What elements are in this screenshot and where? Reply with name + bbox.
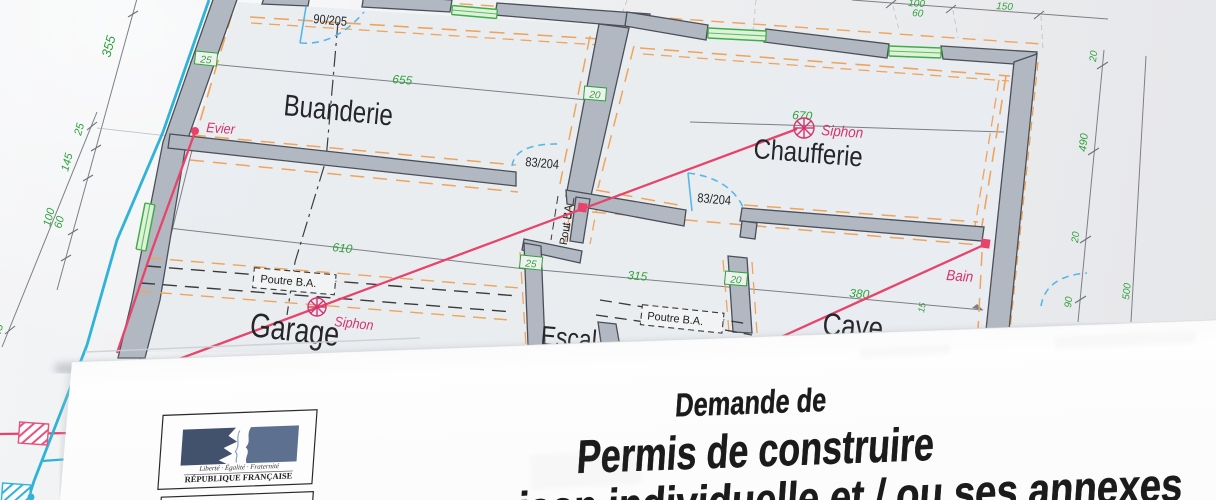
svg-text:150: 150 bbox=[996, 1, 1014, 13]
svg-text:655: 655 bbox=[392, 72, 413, 88]
svg-text:610: 610 bbox=[332, 240, 354, 256]
svg-text:90/205: 90/205 bbox=[313, 11, 348, 29]
svg-text:Siphon: Siphon bbox=[821, 122, 864, 142]
svg-text:500: 500 bbox=[1121, 282, 1134, 300]
svg-text:20: 20 bbox=[1088, 50, 1100, 64]
svg-text:315: 315 bbox=[627, 268, 648, 284]
svg-text:Bain: Bain bbox=[946, 267, 974, 286]
svg-text:90: 90 bbox=[1063, 296, 1075, 309]
svg-text:45: 45 bbox=[0, 322, 6, 338]
svg-text:25: 25 bbox=[199, 54, 213, 66]
svg-text:355: 355 bbox=[98, 33, 118, 59]
svg-text:Demande de: Demande de bbox=[674, 382, 828, 424]
svg-text:25: 25 bbox=[72, 121, 87, 138]
svg-text:83/204: 83/204 bbox=[525, 154, 560, 172]
svg-text:20: 20 bbox=[1070, 231, 1082, 245]
svg-text:20: 20 bbox=[588, 89, 601, 101]
svg-text:60: 60 bbox=[912, 8, 924, 20]
svg-text:Evier: Evier bbox=[206, 119, 236, 137]
svg-text:83/204: 83/204 bbox=[697, 190, 732, 208]
svg-text:670: 670 bbox=[792, 108, 813, 123]
svg-text:25: 25 bbox=[524, 258, 538, 270]
svg-text:20: 20 bbox=[729, 274, 742, 286]
svg-text:490: 490 bbox=[1077, 132, 1091, 152]
svg-text:60: 60 bbox=[52, 214, 67, 230]
